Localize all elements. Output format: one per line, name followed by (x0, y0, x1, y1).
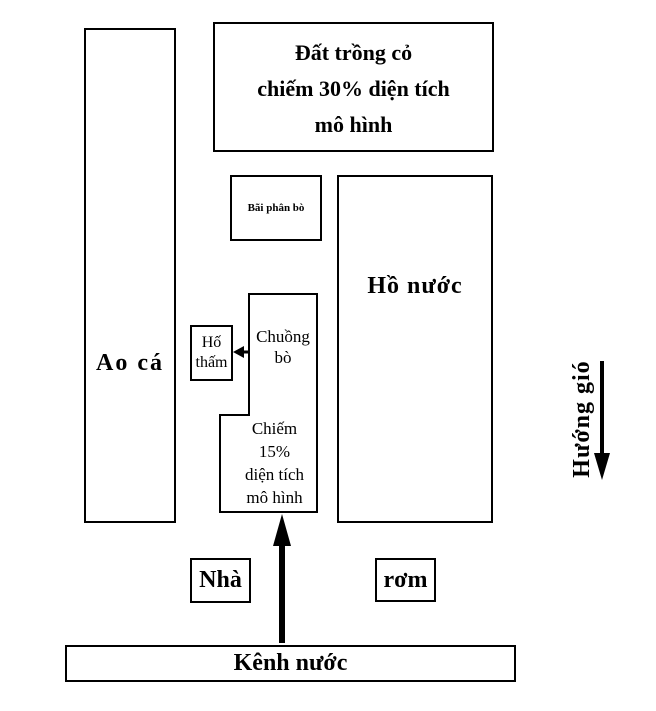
house-label: Nhà (192, 560, 249, 601)
manure-yard-label: Bãi phân bò (232, 177, 320, 239)
water-canal-box: Kênh nước (65, 645, 516, 682)
water-canal-label: Kênh nước (67, 647, 514, 680)
manure-yard-box: Bãi phân bò (230, 175, 322, 241)
water-lake-box: Hồ nước (337, 175, 493, 523)
soak-pit-label: Hố thấm (192, 327, 231, 379)
fish-pond-box: Ao cá (84, 28, 176, 523)
straw-box: rơm (375, 558, 436, 602)
farm-model-diagram: Đất trồng cỏ chiếm 30% diện tích mô hình… (0, 0, 656, 711)
fish-pond-label: Ao cá (86, 350, 174, 377)
grass-plot-label: Đất trồng cỏ chiếm 30% diện tích mô hình (257, 31, 450, 143)
straw-label: rơm (377, 560, 434, 600)
cow-barn-label: Chuồng bò (249, 326, 317, 368)
house-box: Nhà (190, 558, 251, 603)
cow-barn-area-note: Chiếm 15% diện tích mô hình (220, 417, 317, 509)
grass-plot-box: Đất trồng cỏ chiếm 30% diện tích mô hình (213, 22, 494, 152)
soak-pit-box: Hố thấm (190, 325, 233, 381)
canal-to-barn-arrow-icon (273, 514, 291, 643)
wind-direction-label: Hướng gió (567, 339, 597, 499)
barn-to-pit-arrow-icon (233, 346, 248, 358)
water-lake-label: Hồ nước (339, 273, 491, 300)
